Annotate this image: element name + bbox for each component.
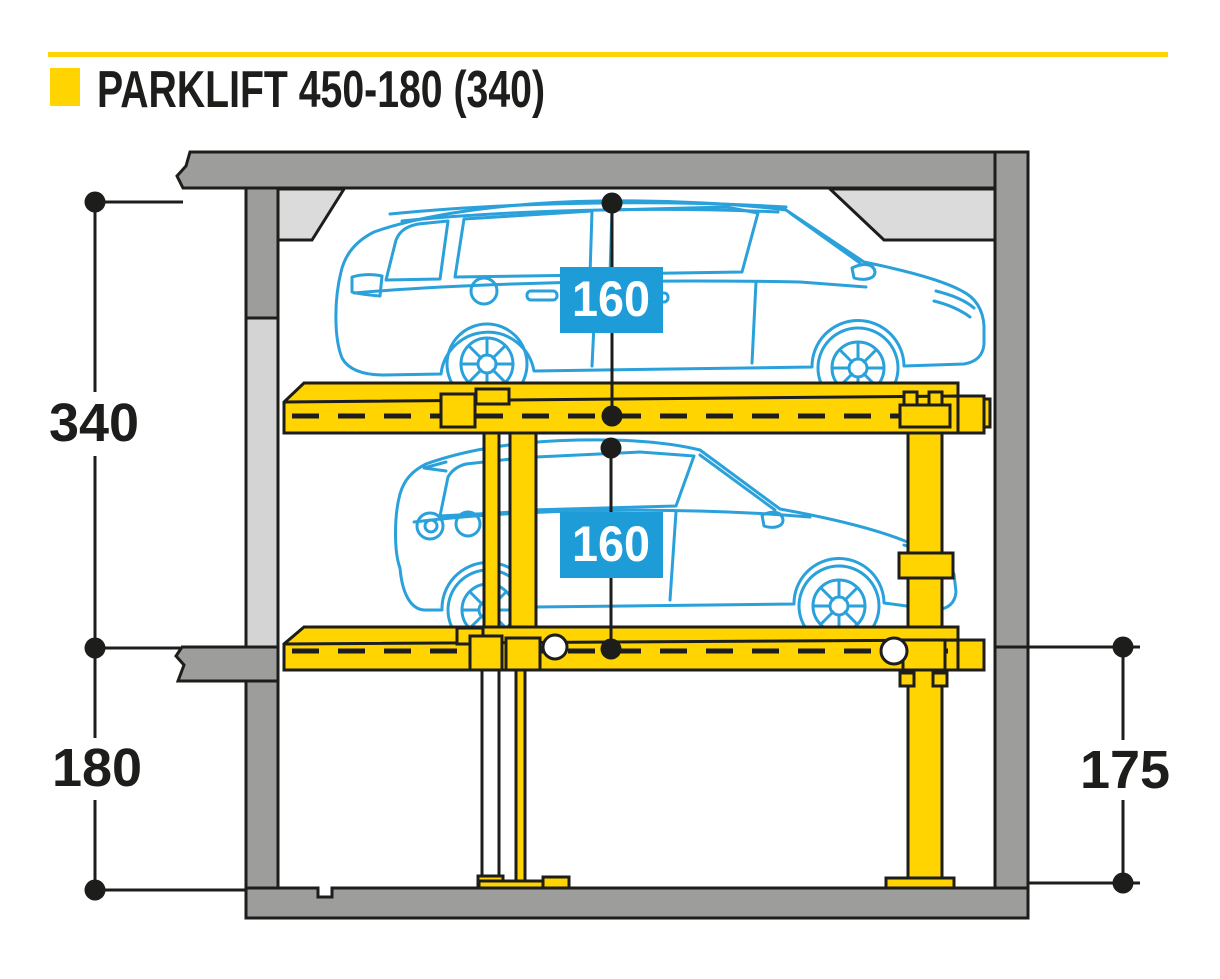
right-upper-bolt-left <box>904 392 917 405</box>
right-dim-dot-bottom <box>1113 873 1134 894</box>
upper-car-rear-door-handle <box>527 291 557 300</box>
right-ceiling-haunch <box>830 189 995 240</box>
header: PARKLIFT 450-180 (340) <box>48 52 1168 119</box>
upper-platform-body <box>284 383 984 433</box>
lower-platform-roller-left <box>543 635 567 659</box>
left-wall-upper <box>246 188 278 318</box>
lower-car-rear-window <box>440 458 520 516</box>
lower-car-windshield-pillar <box>700 455 775 510</box>
lower-center-bracket-left <box>470 636 502 670</box>
right-upper-bolt-right <box>929 392 942 405</box>
lower-platform-roller-right <box>881 638 907 664</box>
right-upper-clamp <box>900 405 950 427</box>
ground-floor-ledge <box>176 647 278 681</box>
center-base-plate <box>479 881 543 888</box>
right-lower-clamp <box>903 640 945 670</box>
lower-car-door-seam <box>670 512 676 600</box>
right-lower-bolt-right <box>933 673 947 686</box>
upper-center-cap <box>476 389 509 404</box>
left-dim-dot-top <box>85 192 106 213</box>
header-rule <box>48 52 1168 57</box>
page-title: PARKLIFT 450-180 (340) <box>97 61 545 119</box>
parklift-diagram-page: PARKLIFT 450-180 (340) <box>0 0 1220 979</box>
upper-car-mirror <box>852 265 875 280</box>
lower-car-tail-light-inner <box>425 520 437 532</box>
right-wall <box>995 152 1028 918</box>
left-dim-dot-middle <box>85 638 106 659</box>
dimension-left: 340 180 <box>49 192 246 901</box>
upper-car-fuel-cap <box>471 278 497 304</box>
upper-car-dim-dot-bottom <box>602 406 623 427</box>
right-dim-dot-top <box>1113 637 1134 658</box>
upper-center-bracket <box>441 394 475 427</box>
left-ceiling-haunch <box>278 189 344 240</box>
left-wall-middle <box>246 318 278 648</box>
upper-clearance-label: 160 <box>572 271 650 327</box>
center-hydraulic-piston <box>484 401 499 663</box>
right-lower-bolt-left <box>900 673 914 686</box>
upper-car-windshield-pillar <box>790 213 860 263</box>
overall-height-label: 340 <box>49 393 139 453</box>
lower-car-tail-light-outer <box>417 513 443 539</box>
upper-car-rear-quarter-window <box>386 221 448 280</box>
right-column-foot-plate <box>886 878 954 888</box>
center-base-block <box>543 877 569 888</box>
pit-floor-slab <box>246 888 1028 918</box>
lower-platform <box>284 627 984 670</box>
center-guide-rod <box>516 666 525 883</box>
center-hydraulic-cylinder <box>482 663 499 876</box>
left-dim-dot-bottom <box>85 880 106 901</box>
pit-depth-right-label: 175 <box>1080 740 1170 800</box>
pit-depth-left-label: 180 <box>52 738 142 798</box>
lower-clearance-label: 160 <box>572 516 650 572</box>
upper-car-front-door-window <box>610 207 758 274</box>
yellow-square-icon <box>50 68 80 106</box>
lower-car-dim-dot-bottom <box>601 639 622 660</box>
upper-platform-end-tab <box>984 399 990 427</box>
lower-car-dim-dot-top <box>601 438 622 459</box>
lower-center-bracket-right <box>506 638 540 670</box>
ceiling-slab <box>177 152 1028 188</box>
left-wall-lower <box>246 681 278 888</box>
upper-platform <box>284 383 990 433</box>
lower-car-hatchback <box>396 440 957 650</box>
right-column-carriage-block <box>899 553 953 578</box>
center-lift-column <box>510 399 536 651</box>
parklift-cross-section-drawing: PARKLIFT 450-180 (340) <box>0 0 1220 979</box>
upper-car-dim-dot-top <box>602 193 623 214</box>
